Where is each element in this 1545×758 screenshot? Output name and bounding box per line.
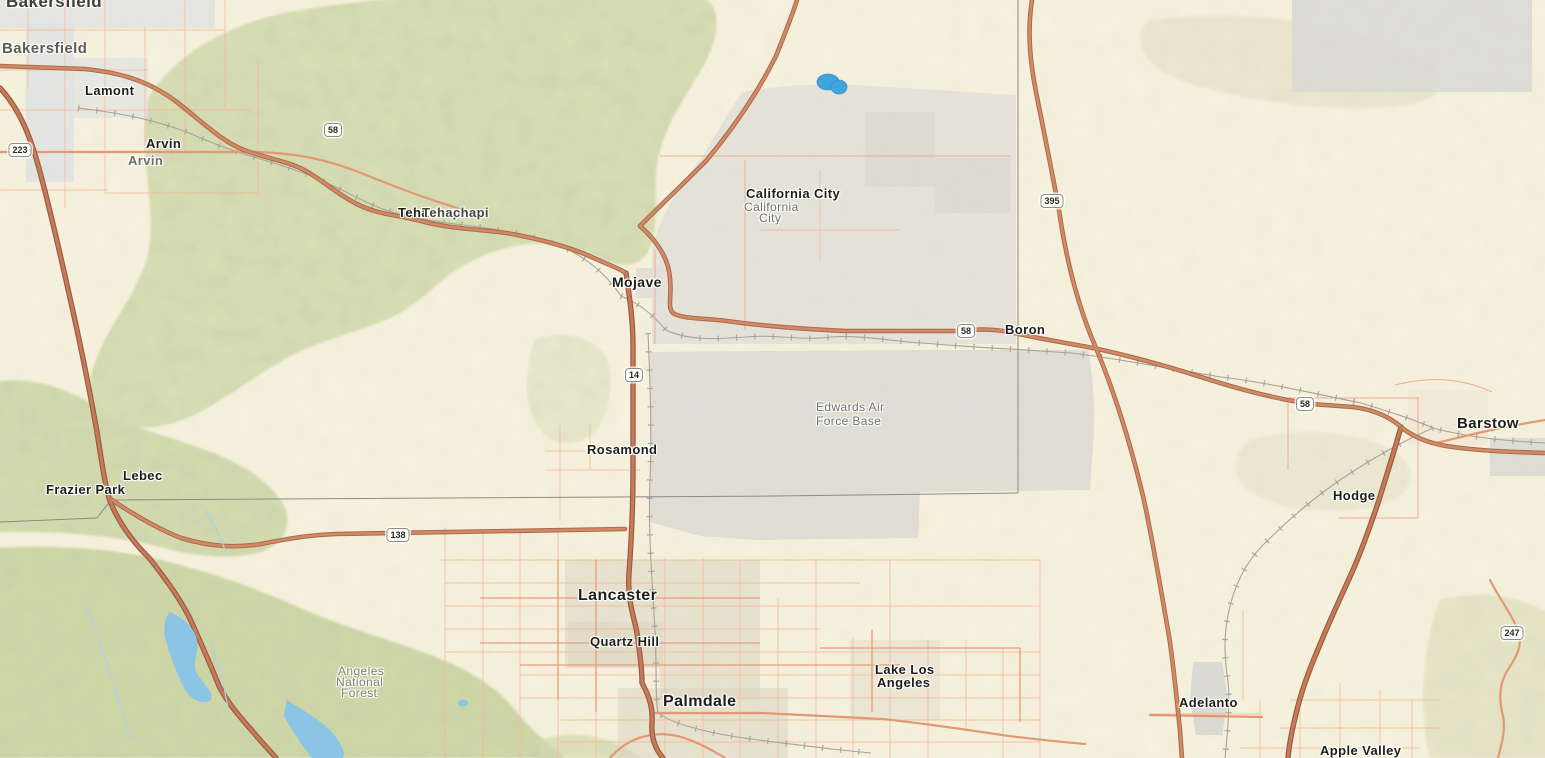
- bouquet-reservoir: [458, 700, 468, 707]
- map-canvas[interactable]: [0, 0, 1545, 758]
- terrain-texture-overlay: [0, 0, 1545, 758]
- desert-lake-lobe: [831, 80, 847, 94]
- map-viewport[interactable]: BakersfieldBakersfieldLamontArvinArvinTe…: [0, 0, 1545, 758]
